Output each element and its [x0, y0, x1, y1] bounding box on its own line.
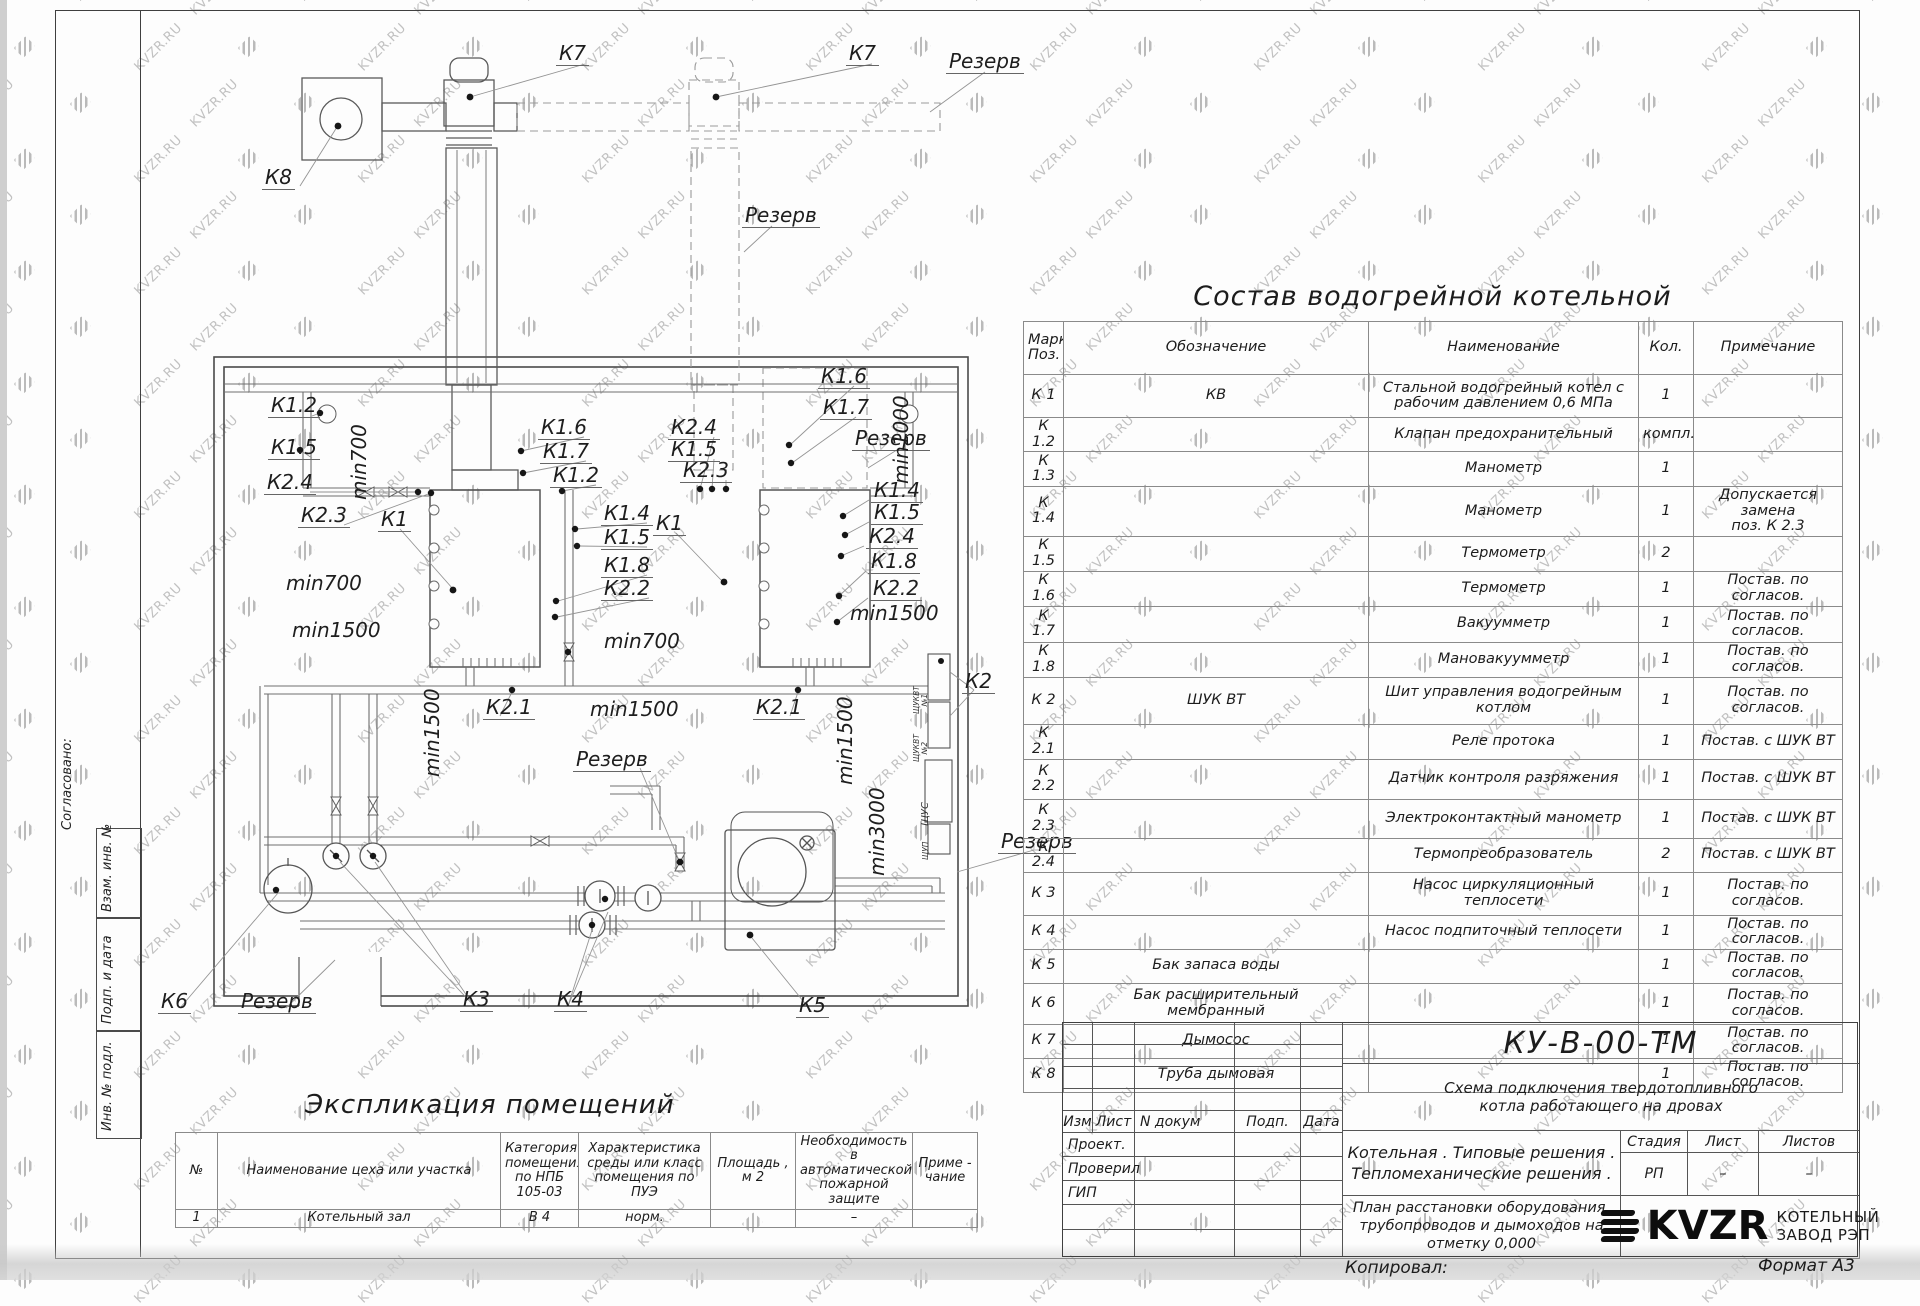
- kvzr-watermark-text: KVZR.RU: [356, 917, 410, 971]
- kvzr-watermark-logo-icon: [14, 372, 36, 394]
- kvzr-watermark-text: KVZR.RU: [1476, 21, 1530, 75]
- kvzr-watermark-logo-icon: [14, 260, 36, 282]
- equipment-tag-label: К1.5: [601, 526, 653, 550]
- kvzr-watermark-logo-icon: [238, 708, 260, 730]
- equipment-row: К 1.6Термометр1Постав. по согласов.: [1024, 571, 1843, 606]
- org-solution-title: Котельная . Типовые решения . Тепломехан…: [1343, 1131, 1621, 1196]
- equipment-row: К 6Бак расширительный мембранный1Постав.…: [1024, 983, 1843, 1024]
- kvzr-watermark-text: KVZR.RU: [188, 861, 242, 915]
- kvzr-watermark-logo-icon: [238, 260, 260, 282]
- stamp-vzam-label: Взам. инв. №: [100, 824, 115, 912]
- dimension-label: min1500: [290, 619, 383, 641]
- kvzr-watermark-text: KVZR.RU: [804, 1253, 858, 1306]
- table-cell: 2: [1639, 536, 1694, 571]
- kvzr-watermark-logo-icon: [1358, 36, 1380, 58]
- title-block: Изм Лист N докум Подп. Дата Проект. Пров…: [1062, 1022, 1858, 1257]
- table-cell: [1694, 536, 1843, 571]
- role-gip: ГИП: [1063, 1181, 1135, 1205]
- table-cell: [913, 1210, 978, 1228]
- kvzr-watermark-logo-icon: [910, 596, 932, 618]
- kvzr-watermark-logo-icon: [462, 1268, 484, 1290]
- kvzr-watermark-text: KVZR.RU: [412, 413, 466, 467]
- kvzr-watermark-text: KVZR.RU: [860, 973, 914, 1027]
- kvzr-watermark-logo-icon: [910, 1044, 932, 1066]
- table-cell: [1369, 983, 1639, 1024]
- kvzr-logo-caption: КОТЕЛЬНЫЙ ЗАВОД РЭП: [1776, 1208, 1879, 1244]
- table-cell: норм.: [579, 1210, 711, 1228]
- table-cell: К 2.3: [1024, 799, 1064, 838]
- table-cell: 1: [1639, 872, 1694, 915]
- kvzr-watermark-logo-icon: [294, 92, 316, 114]
- kvzr-watermark-text: KVZR.RU: [636, 413, 690, 467]
- kvzr-watermark-text: KVZR.RU: [580, 1029, 634, 1083]
- copied-label: Копировал:: [1345, 1258, 1448, 1278]
- column-header: Примечание: [1694, 322, 1843, 375]
- dimension-label: min1000: [890, 393, 912, 486]
- piping: [224, 384, 958, 929]
- rooms-table: №Наименование цеха или участкаКатегория …: [175, 1132, 978, 1228]
- kvzr-watermark-logo-icon: [966, 988, 988, 1010]
- equipment-tag-label: К1.8: [601, 554, 653, 578]
- kvzr-watermark-text: KVZR.RU: [860, 0, 914, 18]
- kvzr-watermark-logo-icon: [1414, 92, 1436, 114]
- equipment-tag-label: К2.4: [866, 525, 918, 549]
- table-cell: К 1.2: [1024, 418, 1064, 452]
- kvzr-watermark-text: KVZR.RU: [580, 693, 634, 747]
- kvzr-watermark-text: KVZR.RU: [804, 581, 858, 635]
- table-cell: Постав. по согласов.: [1694, 915, 1843, 949]
- kvzr-watermark-logo-icon: [742, 652, 764, 674]
- kvzr-watermark-logo-icon: [70, 92, 92, 114]
- table-cell: 2: [1639, 838, 1694, 872]
- equipment-tag-label: К1.7: [820, 396, 872, 420]
- kvzr-watermark-text: KVZR.RU: [804, 21, 858, 75]
- kvzr-watermark-logo-icon: [294, 876, 316, 898]
- kvzr-watermark-logo-icon: [238, 484, 260, 506]
- tank-k6: [264, 858, 312, 913]
- kvzr-watermark-text: KVZR.RU: [860, 413, 914, 467]
- equipment-row: К 1КВСтальной водогрейный котел с рабочи…: [1024, 375, 1843, 418]
- kvzr-watermark-text: KVZR.RU: [356, 581, 410, 635]
- kvzr-watermark-logo-icon: [518, 764, 540, 786]
- table-cell: Бак запаса воды: [1064, 949, 1369, 983]
- kvzr-watermark-text: KVZR.RU: [188, 749, 242, 803]
- blueprint-sheet: { "sheet": { "watermark_text": "KVZR.RU"…: [0, 0, 1920, 1280]
- kvzr-watermark-text: KVZR.RU: [860, 301, 914, 355]
- table-cell: Стальной водогрейный котел с рабочим дав…: [1369, 375, 1639, 418]
- kvzr-watermark-logo-icon: [1862, 876, 1884, 898]
- kvzr-watermark-logo-icon: [14, 1268, 36, 1290]
- kvzr-watermark-text: KVZR.RU: [860, 749, 914, 803]
- kvzr-watermark-text: KVZR.RU: [1084, 189, 1138, 243]
- panel-label: ЩУС: [922, 802, 930, 826]
- kvzr-watermark-text: KVZR.RU: [636, 189, 690, 243]
- table-cell: Термометр: [1369, 536, 1639, 571]
- table-cell: [1694, 452, 1843, 487]
- dimension-label: min700: [348, 422, 370, 502]
- equipment-tag-label: Резерв: [852, 427, 930, 451]
- kvzr-watermark-text: KVZR.RU: [188, 301, 242, 355]
- kvzr-watermark-logo-icon: [966, 204, 988, 226]
- equipment-row: К 5Бак запаса воды1Постав. по согласов.: [1024, 949, 1843, 983]
- table-cell: К 4: [1024, 915, 1064, 949]
- equipment-row: К 1.8Мановакуумметр1Постав. по согласов.: [1024, 642, 1843, 677]
- kvzr-watermark-logo-icon: [686, 1044, 708, 1066]
- rev-header-list: Лист: [1093, 1111, 1135, 1133]
- kvzr-logo-text: KVZR: [1647, 1203, 1769, 1249]
- table-cell: Постав. с ШУК ВТ: [1694, 724, 1843, 759]
- kvzr-watermark-logo-icon: [1862, 764, 1884, 786]
- table-cell: Насос подпиточный теплосети: [1369, 915, 1639, 949]
- kvzr-watermark-logo-icon: [518, 0, 540, 2]
- kvzr-watermark-text: KVZR.RU: [1028, 21, 1082, 75]
- room-row: 1Котельный залВ 4норм.–: [176, 1210, 978, 1228]
- kvzr-watermark-text: KVZR.RU: [804, 245, 858, 299]
- kvzr-watermark-logo-icon: [966, 428, 988, 450]
- kvzr-watermark-logo-icon: [1582, 260, 1604, 282]
- kvzr-watermark-text: KVZR.RU: [356, 357, 410, 411]
- kvzr-watermark-logo-icon: [1638, 0, 1660, 2]
- kvzr-watermark-logo-icon: [294, 540, 316, 562]
- kvzr-watermark-logo-icon: [742, 92, 764, 114]
- table-cell: Реле протока: [1369, 724, 1639, 759]
- kvzr-watermark-text: KVZR.RU: [580, 357, 634, 411]
- table-cell: [1064, 571, 1369, 606]
- kvzr-watermark-logo-icon: [14, 596, 36, 618]
- column-header: №: [176, 1133, 218, 1210]
- kvzr-watermark-text: KVZR.RU: [412, 973, 466, 1027]
- table-cell: [1064, 452, 1369, 487]
- kvzr-watermark-logo-icon: [966, 764, 988, 786]
- table-cell: Постав. по согласов.: [1694, 872, 1843, 915]
- kvzr-watermark-text: KVZR.RU: [188, 413, 242, 467]
- kvzr-watermark-text: KVZR.RU: [804, 1029, 858, 1083]
- kvzr-watermark-logo-icon: [70, 1100, 92, 1122]
- kvzr-watermark-logo-icon: [686, 372, 708, 394]
- kvzr-watermark-logo-icon: [462, 148, 484, 170]
- kvzr-watermark-text: KVZR.RU: [1308, 189, 1362, 243]
- table-cell: КВ: [1064, 375, 1369, 418]
- kvzr-watermark-text: KVZR.RU: [356, 693, 410, 747]
- table-cell: Постав. по согласов.: [1694, 606, 1843, 642]
- tank-k5: [725, 812, 835, 950]
- equipment-row: К 2.2Датчик контроля разряжения1Постав. …: [1024, 759, 1843, 799]
- table-cell: Термометр: [1369, 571, 1639, 606]
- equipment-table-section: Состав водогрейной котельной Марка Поз.О…: [1023, 281, 1842, 1093]
- table-cell: 1: [1639, 375, 1694, 418]
- kvzr-watermark-logo-icon: [1358, 148, 1380, 170]
- kvzr-watermark-logo-icon: [14, 1044, 36, 1066]
- kvzr-watermark-logo-icon: [1582, 148, 1604, 170]
- kvzr-watermark-logo-icon: [238, 596, 260, 618]
- equipment-table: Марка Поз.ОбозначениеНаименованиеКол.При…: [1023, 321, 1843, 1093]
- equipment-table-title: Состав водогрейной котельной: [1023, 281, 1842, 312]
- table-cell: К 7: [1024, 1024, 1064, 1058]
- table-cell: 1: [1639, 571, 1694, 606]
- kvzr-watermark-logo-icon: [70, 652, 92, 674]
- equipment-row: К 1.3Манометр1: [1024, 452, 1843, 487]
- kvzr-watermark-text: KVZR.RU: [580, 133, 634, 187]
- table-cell: [1694, 418, 1843, 452]
- kvzr-watermark-logo-icon: [462, 932, 484, 954]
- table-cell: В 4: [501, 1210, 579, 1228]
- kvzr-watermark-logo-icon: [238, 820, 260, 842]
- column-header: Характеристика среды или класс помещения…: [579, 1133, 711, 1210]
- table-cell: Манометр: [1369, 452, 1639, 487]
- table-cell: Постав. с ШУК ВТ: [1694, 759, 1843, 799]
- kvzr-watermark-text: KVZR.RU: [580, 469, 634, 523]
- table-cell: Постав. с ШУК ВТ: [1694, 799, 1843, 838]
- equipment-tag-label: К7: [846, 42, 879, 66]
- role-project: Проект.: [1063, 1133, 1135, 1157]
- equipment-row: К 1.4Манометр1Допускается замена поз. К …: [1024, 487, 1843, 537]
- kvzr-watermark-logo-icon: [1862, 316, 1884, 338]
- column-header: Наименование: [1369, 322, 1639, 375]
- table-cell: К 2.1: [1024, 724, 1064, 759]
- kvzr-watermark-logo-icon: [1638, 204, 1660, 226]
- kvzr-watermark-text: KVZR.RU: [636, 973, 690, 1027]
- kvzr-watermark-logo-icon: [1862, 988, 1884, 1010]
- table-cell: [1064, 642, 1369, 677]
- kvzr-watermark-text: KVZR.RU: [412, 637, 466, 691]
- kvzr-watermark-logo-icon: [1806, 36, 1828, 58]
- kvzr-watermark-logo-icon: [518, 316, 540, 338]
- kvzr-watermark-logo-icon: [966, 0, 988, 2]
- kvzr-watermark-text: KVZR.RU: [188, 637, 242, 691]
- equipment-row: К 1.7Вакуумметр1Постав. по согласов.: [1024, 606, 1843, 642]
- boiler-grates: [463, 658, 841, 667]
- document-title: Схема подключения твердотопливного котла…: [1343, 1064, 1859, 1131]
- kvzr-watermark-text: KVZR.RU: [804, 133, 858, 187]
- equipment-row: К 2.1Реле протока1Постав. с ШУК ВТ: [1024, 724, 1843, 759]
- kvzr-watermark-text: KVZR.RU: [636, 749, 690, 803]
- stamp-podp-label: Подп. и дата: [100, 935, 115, 1024]
- kvzr-watermark-text: KVZR.RU: [412, 0, 466, 18]
- kvzr-watermark-text: KVZR.RU: [412, 189, 466, 243]
- kvzr-watermark-text: KVZR.RU: [1308, 0, 1362, 18]
- kvzr-watermark-text: KVZR.RU: [188, 525, 242, 579]
- kvzr-watermark-logo-icon: [1862, 92, 1884, 114]
- kvzr-watermark-logo-icon: [686, 260, 708, 282]
- table-cell: –: [796, 1210, 913, 1228]
- stamp-agreed-label: Согласовано:: [60, 738, 75, 830]
- table-cell: [1064, 724, 1369, 759]
- kvzr-watermark-logo-icon: [686, 1268, 708, 1290]
- table-cell: Допускается замена поз. К 2.3: [1694, 487, 1843, 537]
- table-cell: К 3: [1024, 872, 1064, 915]
- table-cell: компл.: [1639, 418, 1694, 452]
- kvzr-watermark-logo-icon: [518, 652, 540, 674]
- kvzr-watermark-logo-icon: [742, 0, 764, 2]
- kvzr-watermark-logo-icon: [1134, 260, 1156, 282]
- kvzr-watermark-logo-icon: [294, 0, 316, 2]
- reserve-fan-and-duct: [517, 58, 940, 488]
- column-header: Необходимость в автоматической пожарной …: [796, 1133, 913, 1210]
- kvzr-watermark-text: KVZR.RU: [1700, 21, 1754, 75]
- kvzr-watermark-text: KVZR.RU: [356, 1029, 410, 1083]
- equipment-tag-label: К4: [554, 988, 587, 1012]
- kvzr-watermark-logo-icon: [686, 148, 708, 170]
- equipment-row-header: Марка Поз.ОбозначениеНаименованиеКол.При…: [1024, 322, 1843, 375]
- kvzr-watermark-logo-icon: [70, 0, 92, 2]
- table-cell: [1064, 799, 1369, 838]
- rooms-table-title: Экспликация помещений: [305, 1090, 977, 1120]
- table-cell: Постав. с ШУК ВТ: [1694, 838, 1843, 872]
- equipment-tag-label: К1.5: [268, 436, 320, 460]
- table-cell: 1: [1639, 983, 1694, 1024]
- rev-header-podp: Подп.: [1235, 1111, 1301, 1133]
- sheet-value: –: [1688, 1153, 1759, 1196]
- kvzr-watermark-text: KVZR.RU: [804, 357, 858, 411]
- kvzr-watermark-logo-icon: [1414, 204, 1436, 226]
- stage-header: Стадия: [1621, 1131, 1688, 1153]
- kvzr-watermark-logo-icon: [742, 988, 764, 1010]
- table-cell: К 2: [1024, 677, 1064, 724]
- kvzr-watermark-logo-icon: [462, 1044, 484, 1066]
- table-cell: Вакуумметр: [1369, 606, 1639, 642]
- dimension-label: min1500: [588, 698, 681, 720]
- kvzr-watermark-text: KVZR.RU: [580, 245, 634, 299]
- table-cell: Электроконтактный манометр: [1369, 799, 1639, 838]
- kvzr-watermark-text: KVZR.RU: [1308, 77, 1362, 131]
- equipment-tag-label: К7: [556, 42, 589, 66]
- panel-label: ЩУП: [922, 842, 930, 860]
- rooms-table-section: Экспликация помещений №Наименование цеха…: [175, 1090, 977, 1228]
- kvzr-watermark-logo-icon: [70, 540, 92, 562]
- kvzr-watermark-logo-icon: [966, 92, 988, 114]
- panel-label: ЩУКВТ №2: [913, 734, 929, 762]
- leader-lines: [180, 64, 1034, 1012]
- kvzr-watermark-logo-icon: [1190, 0, 1212, 2]
- sheets-value: –: [1759, 1153, 1859, 1196]
- table-cell: 1: [1639, 799, 1694, 838]
- sheets-header: Листов: [1759, 1131, 1859, 1153]
- table-cell: Мановакуумметр: [1369, 642, 1639, 677]
- kvzr-watermark-logo-icon: [1862, 428, 1884, 450]
- sheet-header: Лист: [1688, 1131, 1759, 1153]
- control-panels: [925, 654, 952, 854]
- equipment-tag-label: К2.4: [264, 471, 316, 495]
- kvzr-watermark-text: KVZR.RU: [1252, 133, 1306, 187]
- kvzr-watermark-text: KVZR.RU: [412, 749, 466, 803]
- kvzr-watermark-logo-icon: [14, 36, 36, 58]
- table-cell: Шит управления водогрейным котлом: [1369, 677, 1639, 724]
- equipment-tag-label: Резерв: [742, 204, 820, 228]
- table-cell: [1064, 606, 1369, 642]
- kvzr-watermark-logo-icon: [966, 652, 988, 674]
- kvzr-watermark-text: KVZR.RU: [1700, 1253, 1754, 1306]
- kvzr-watermark-text: KVZR.RU: [580, 21, 634, 75]
- equipment-tag-label: Резерв: [946, 50, 1024, 74]
- kvzr-logo-icon: [1601, 1209, 1639, 1244]
- table-cell: 1: [1639, 606, 1694, 642]
- kvzr-watermark-text: KVZR.RU: [1700, 133, 1754, 187]
- kvzr-watermark-logo-icon: [910, 820, 932, 842]
- column-header: Обозначение: [1064, 322, 1369, 375]
- table-cell: Насос циркуляционный теплосети: [1369, 872, 1639, 915]
- kvzr-watermark-text: KVZR.RU: [412, 301, 466, 355]
- table-cell: Постав. по согласов.: [1694, 571, 1843, 606]
- plan-title: План расстановки оборудования, трубопров…: [1343, 1196, 1621, 1256]
- equipment-tag-label: К1.5: [668, 438, 720, 462]
- table-cell: К 5: [1024, 949, 1064, 983]
- table-cell: Манометр: [1369, 487, 1639, 537]
- chimney-and-fan: [302, 58, 518, 490]
- kvzr-watermark-text: KVZR.RU: [860, 525, 914, 579]
- kvzr-watermark-text: KVZR.RU: [580, 917, 634, 971]
- table-cell: К 1: [1024, 375, 1064, 418]
- flanges: [570, 886, 624, 935]
- kvzr-watermark-text: KVZR.RU: [1532, 77, 1586, 131]
- kvzr-watermark-logo-icon: [910, 708, 932, 730]
- kvzr-watermark-logo-icon: [294, 988, 316, 1010]
- scan-edge-shadow: [0, 0, 7, 1280]
- kvzr-watermark-logo-icon: [14, 148, 36, 170]
- kvzr-watermark-text: KVZR.RU: [804, 469, 858, 523]
- kvzr-watermark-logo-icon: [70, 204, 92, 226]
- kvzr-watermark-logo-icon: [1190, 204, 1212, 226]
- equipment-tag-label: К8: [262, 166, 295, 190]
- equipment-tag-label: К1.7: [540, 440, 592, 464]
- table-cell: [1064, 759, 1369, 799]
- equipment-row: К 2ШУК ВТШит управления водогрейным котл…: [1024, 677, 1843, 724]
- role-checked: Проверил: [1063, 1157, 1135, 1181]
- table-cell: [1064, 487, 1369, 537]
- kvzr-watermark-text: KVZR.RU: [860, 189, 914, 243]
- kvzr-watermark-text: KVZR.RU: [860, 861, 914, 915]
- kvzr-watermark-logo-icon: [910, 484, 932, 506]
- equipment-tag-label: К1.8: [868, 550, 920, 574]
- kvzr-watermark-logo-icon: [462, 708, 484, 730]
- kvzr-watermark-text: KVZR.RU: [636, 861, 690, 915]
- kvzr-watermark-logo-icon: [686, 932, 708, 954]
- kvzr-watermark-logo-icon: [518, 204, 540, 226]
- equipment-row: К 3Насос циркуляционный теплосети1Постав…: [1024, 872, 1843, 915]
- table-cell: 1: [1639, 677, 1694, 724]
- kvzr-watermark-logo-icon: [686, 820, 708, 842]
- table-cell: Постав. по согласов.: [1694, 677, 1843, 724]
- equipment-row: К 2.3Электроконтактный манометр1Постав. …: [1024, 799, 1843, 838]
- kvzr-watermark-text: KVZR.RU: [1756, 0, 1810, 18]
- kvzr-watermark-logo-icon: [462, 596, 484, 618]
- equipment-tag-label: К2.3: [298, 504, 350, 528]
- rev-header-izm: Изм: [1063, 1111, 1093, 1133]
- kvzr-watermark-logo-icon: [238, 1044, 260, 1066]
- table-cell: Термопреобразователь: [1369, 838, 1639, 872]
- kvzr-watermark-logo-icon: [1134, 1268, 1156, 1290]
- kvzr-watermark-text: KVZR.RU: [804, 693, 858, 747]
- kvzr-watermark-text: KVZR.RU: [412, 525, 466, 579]
- kvzr-watermark-logo-icon: [70, 428, 92, 450]
- kvzr-watermark-logo-icon: [14, 1156, 36, 1178]
- table-cell: К 8: [1024, 1058, 1064, 1092]
- kvzr-watermark-text: KVZR.RU: [132, 1253, 186, 1306]
- dimension-label: min3000: [866, 785, 888, 878]
- kvzr-watermark-logo-icon: [1582, 36, 1604, 58]
- kvzr-watermark-logo-icon: [238, 1268, 260, 1290]
- equipment-tag-label: К2.4: [668, 416, 720, 440]
- table-cell: Котельный зал: [218, 1210, 501, 1228]
- panel-label: ЩУКВТ №1: [913, 686, 929, 714]
- kvzr-watermark-logo-icon: [910, 260, 932, 282]
- kvzr-watermark-logo-icon: [70, 876, 92, 898]
- kvzr-watermark-logo-icon: [966, 876, 988, 898]
- kvzr-watermark-text: KVZR.RU: [356, 133, 410, 187]
- leader-dots: [273, 94, 944, 939]
- kvzr-watermark-text: KVZR.RU: [356, 469, 410, 523]
- table-cell: [1064, 915, 1369, 949]
- kvzr-watermark-text: KVZR.RU: [1476, 133, 1530, 187]
